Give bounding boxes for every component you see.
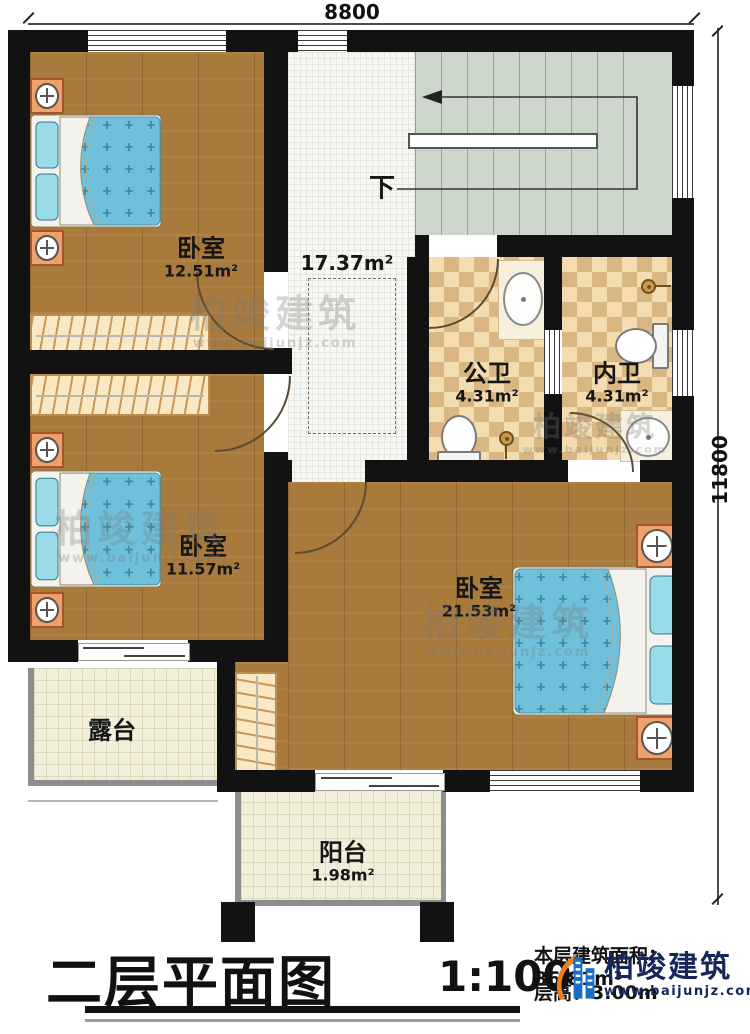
nightstand xyxy=(30,230,64,266)
window xyxy=(544,330,562,394)
wall xyxy=(544,394,562,460)
lamp-icon xyxy=(35,235,59,261)
pillar xyxy=(221,902,255,942)
eave-line xyxy=(28,800,218,802)
wall xyxy=(8,30,30,662)
hallway-area-label: 17.37m² xyxy=(301,252,394,274)
nightstand xyxy=(30,592,64,628)
dimension-tick xyxy=(688,12,700,24)
lamp-icon xyxy=(641,721,673,755)
stair-direction-arrow xyxy=(360,60,670,210)
ensuite-bath-label: 内卫 4.31m² xyxy=(585,361,648,406)
wall xyxy=(264,348,292,374)
toilet-icon xyxy=(615,328,657,364)
closet-bedroom2 xyxy=(30,374,210,416)
window xyxy=(88,30,226,52)
wall xyxy=(217,770,315,792)
dimension-top-value: 8800 xyxy=(324,0,380,24)
bed-bedroom1 xyxy=(30,114,162,228)
balcony-label: 阳台 1.98m² xyxy=(311,840,374,885)
window xyxy=(672,86,694,198)
wall xyxy=(672,30,694,86)
wall xyxy=(264,460,292,482)
bed-bedroom2 xyxy=(30,470,162,588)
terrace-wall xyxy=(28,780,220,786)
stairwell-void-outline xyxy=(308,278,396,434)
window xyxy=(298,30,347,52)
wall xyxy=(8,350,264,374)
wall xyxy=(365,460,568,482)
wall xyxy=(264,452,288,662)
wall xyxy=(415,235,429,257)
wall xyxy=(188,640,264,662)
wall xyxy=(443,770,490,792)
sliding-door xyxy=(78,643,190,661)
title-underline-thin xyxy=(85,1019,520,1022)
lamp-icon xyxy=(641,529,673,563)
shower-head-icon xyxy=(641,279,656,294)
pillar xyxy=(420,902,454,942)
floor-plan: 卧室 12.51m² 17.37m² 下 公卫 4.31m² 内卫 4.31m²… xyxy=(0,0,750,1034)
wall xyxy=(497,235,692,257)
shower-stem xyxy=(655,285,671,287)
door-bedroom2 xyxy=(215,376,291,452)
bedroom3-label: 卧室 21.53m² xyxy=(442,576,516,621)
shower-stem xyxy=(505,445,507,459)
bed-bedroom3 xyxy=(512,566,684,716)
lamp-icon xyxy=(35,437,59,463)
sink-icon xyxy=(503,272,543,326)
wall xyxy=(672,396,694,792)
title-underline xyxy=(85,1006,520,1013)
terrace-label: 露台 xyxy=(88,718,136,745)
window xyxy=(672,330,694,396)
building-logo-icon xyxy=(552,948,600,1006)
logo-text: 柏竣建筑 www.baijunjz.com xyxy=(604,953,750,1001)
shower-head-icon xyxy=(499,431,514,446)
bedroom1-label: 卧室 12.51m² xyxy=(164,236,238,281)
nightstand xyxy=(30,78,64,114)
wall xyxy=(264,52,288,272)
balcony-wall xyxy=(235,900,446,906)
sliding-door xyxy=(315,773,445,791)
logo-company-name: 柏竣建筑 xyxy=(604,953,750,983)
nightstand xyxy=(30,432,64,468)
company-logo: 柏竣建筑 www.baijunjz.com xyxy=(552,948,750,1006)
wall xyxy=(347,30,694,52)
wall xyxy=(672,198,694,330)
wall xyxy=(640,770,694,792)
public-bath-label: 公卫 4.31m² xyxy=(455,361,518,406)
wall xyxy=(407,257,429,460)
stairs-down-label: 下 xyxy=(369,174,395,203)
bedroom2-label: 卧室 11.57m² xyxy=(166,534,240,579)
window xyxy=(490,770,640,792)
wall xyxy=(28,30,88,52)
logo-website: www.baijunjz.com xyxy=(604,983,750,1001)
wall xyxy=(226,30,298,52)
dimension-right-value: 11800 xyxy=(708,435,732,505)
wall xyxy=(8,640,78,662)
wall xyxy=(640,460,672,482)
lamp-icon xyxy=(35,83,59,109)
sink-icon xyxy=(626,417,670,457)
lamp-icon xyxy=(35,597,59,623)
wall xyxy=(544,257,562,330)
wall xyxy=(217,662,235,772)
